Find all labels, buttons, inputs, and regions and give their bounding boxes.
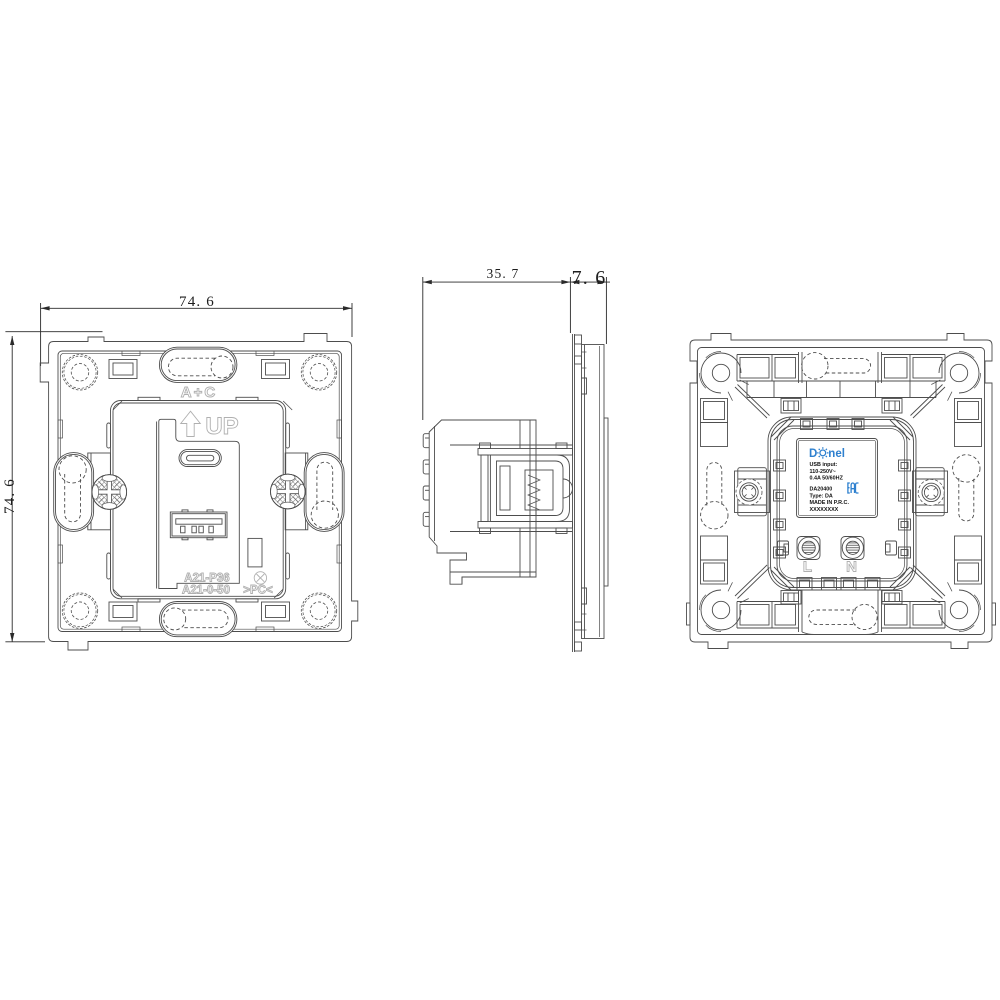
svg-text:D: D bbox=[809, 448, 817, 460]
svg-text:110-250V~: 110-250V~ bbox=[810, 469, 836, 475]
svg-text:A21-P36: A21-P36 bbox=[184, 573, 229, 585]
svg-text:7. 6: 7. 6 bbox=[572, 267, 607, 289]
svg-text:Type: DA: Type: DA bbox=[810, 494, 833, 500]
svg-text:UP: UP bbox=[205, 413, 238, 440]
svg-text:A+C: A+C bbox=[181, 384, 217, 401]
svg-text:>PC<: >PC< bbox=[243, 584, 273, 596]
svg-text:L: L bbox=[803, 559, 812, 576]
svg-text:35. 7: 35. 7 bbox=[487, 266, 520, 281]
svg-text:0.4A 50/60HZ: 0.4A 50/60HZ bbox=[810, 476, 844, 482]
svg-text:N: N bbox=[846, 559, 857, 576]
svg-text:nel: nel bbox=[828, 448, 845, 460]
svg-text:DA20400: DA20400 bbox=[810, 487, 833, 493]
svg-text:74. 6: 74. 6 bbox=[2, 478, 18, 514]
svg-text:XXXXXXXX: XXXXXXXX bbox=[810, 507, 839, 513]
svg-text:MADE IN P.R.C.: MADE IN P.R.C. bbox=[810, 500, 850, 506]
svg-text:74. 6: 74. 6 bbox=[179, 294, 215, 310]
svg-text:USB input:: USB input: bbox=[810, 462, 838, 468]
svg-text:A21-0-50: A21-0-50 bbox=[182, 584, 230, 596]
